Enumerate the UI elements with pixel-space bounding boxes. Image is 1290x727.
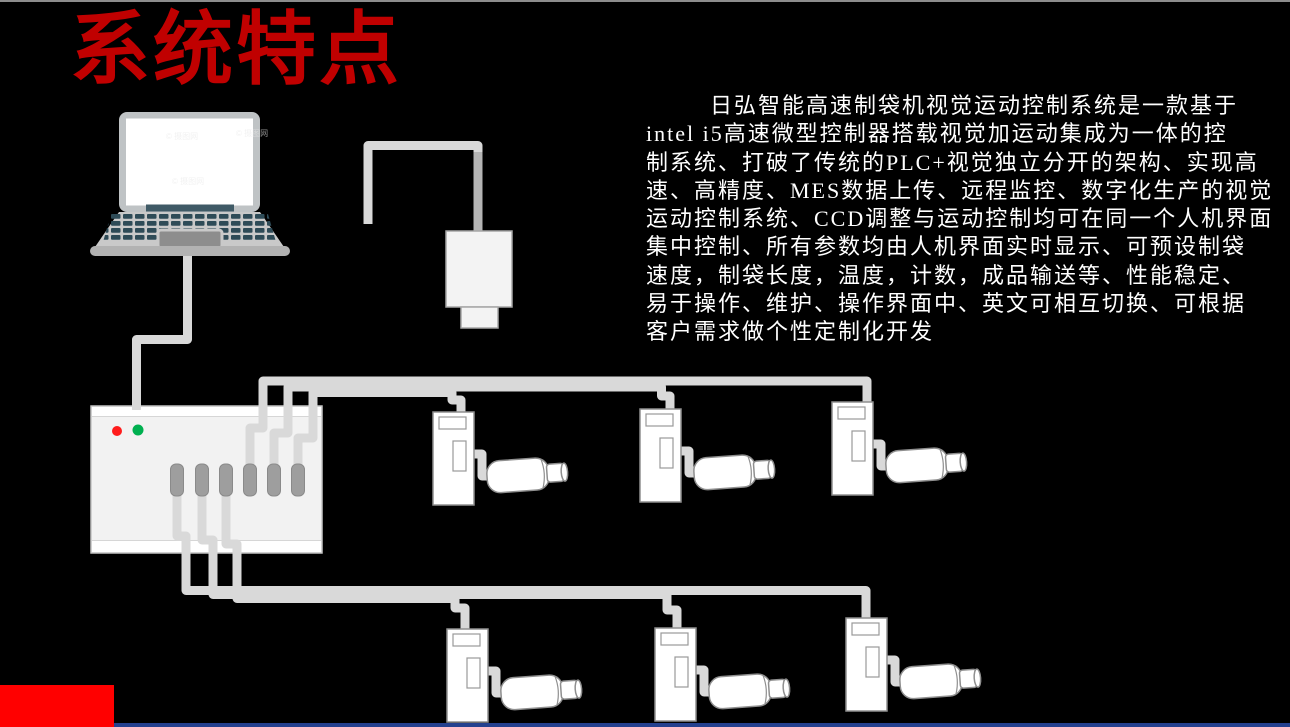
controller-port (220, 464, 233, 496)
watermark-text: © 摄图网 (172, 177, 204, 186)
driver-motor-unit-1 (433, 412, 569, 505)
controller-port (268, 464, 281, 496)
controller-port (292, 464, 305, 496)
watermark-text: © 摄图网 (166, 132, 198, 141)
power-led-red (112, 426, 122, 436)
run-led-green (133, 425, 144, 436)
red-accent-block (0, 685, 114, 727)
laptop-hinge (146, 205, 234, 212)
watermark-text: © 摄图网 (236, 129, 268, 138)
slide: 系统特点 日弘智能高速制袋机视觉运动控制系统是一款基于 intel i5高速微型… (0, 0, 1290, 727)
driver-motor-unit-6 (846, 618, 982, 711)
laptop-to-controller-cable (137, 253, 188, 410)
ccd-camera (446, 231, 512, 328)
controller-port (244, 464, 257, 496)
controller-port (196, 464, 209, 496)
driver-motor-unit-3 (832, 402, 968, 495)
driver-motor-unit-2 (640, 409, 776, 502)
system-diagram: © 摄图网 © 摄图网 © 摄图网 (0, 0, 1290, 727)
driver-motor-unit-4 (447, 629, 583, 722)
laptop-touchpad (158, 230, 222, 248)
laptop: © 摄图网 © 摄图网 © 摄图网 (90, 112, 290, 256)
camera-lens (461, 307, 498, 328)
camera-cable (368, 146, 478, 232)
camera-body (446, 231, 512, 307)
driver-motor-unit-5 (655, 628, 791, 721)
controller-port (171, 464, 184, 496)
bottom-accent-bar (114, 723, 1290, 727)
laptop-base-bottom (90, 246, 290, 256)
